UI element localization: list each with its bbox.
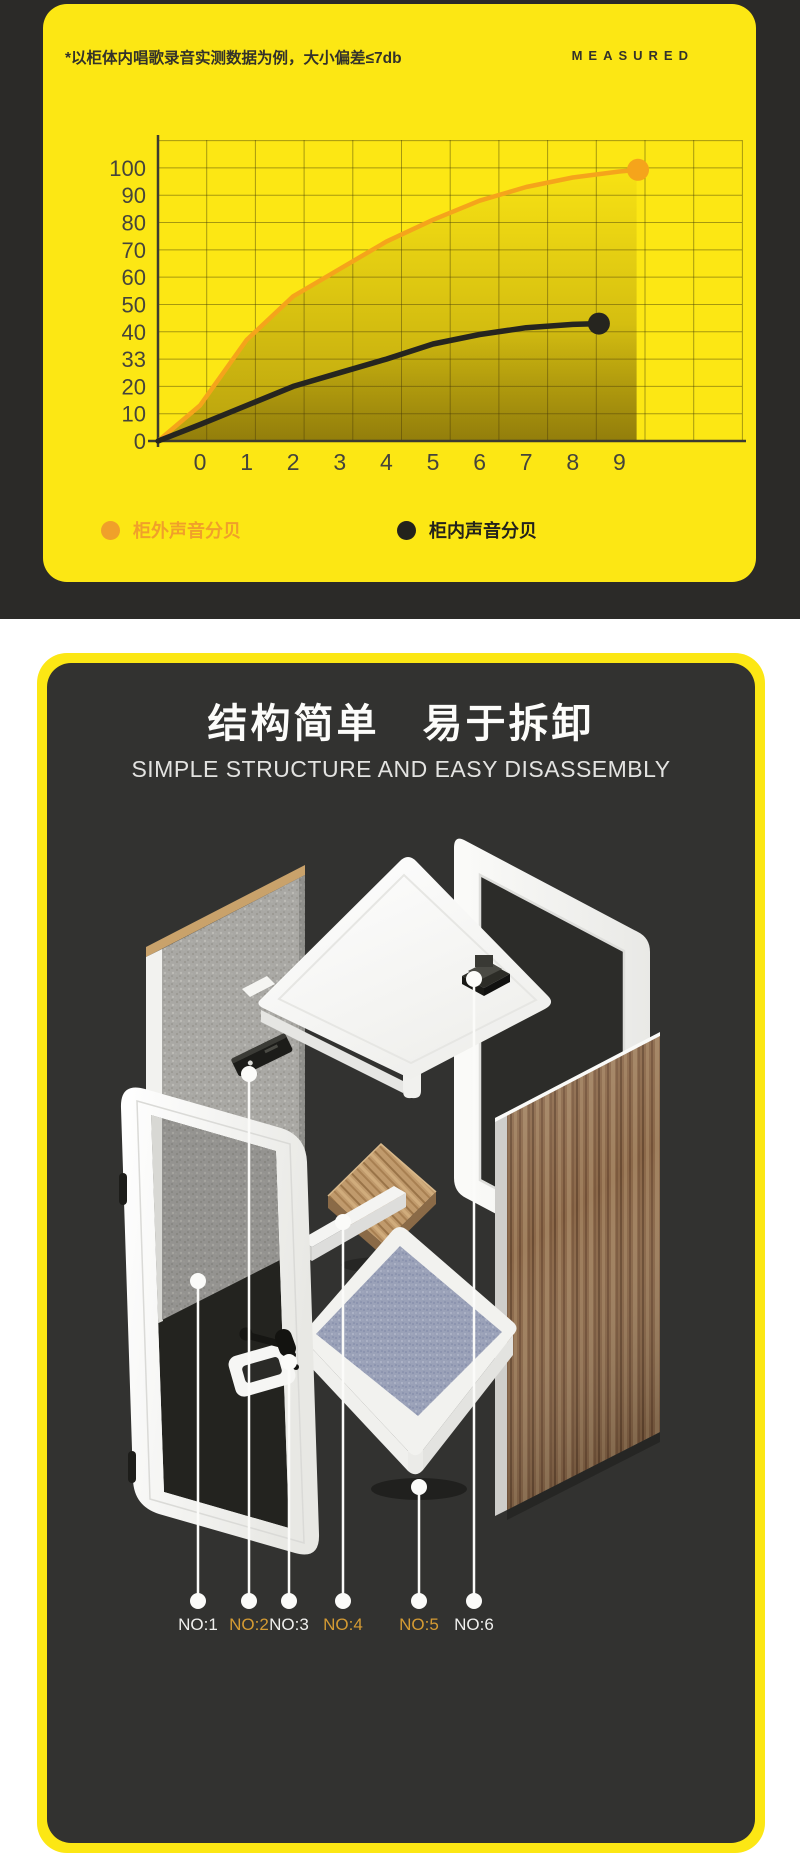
door-hinge-top [119, 1173, 127, 1205]
part-label-6: NO:6 [454, 1615, 494, 1634]
structure-card: 结构简单 易于拆卸 SIMPLE STRUCTURE AND EASY DISA… [47, 663, 755, 1843]
wood-side-panel-part [495, 1032, 660, 1520]
measurement-card: *以柜体内唱歌录音实测数据为例，大小偏差≤7db MEASURED 010203… [43, 4, 756, 582]
x-tick-label: 0 [194, 449, 207, 475]
exploded-view-diagram: NO:1 NO:2 NO:3 NO:4 NO:5 NO:6 [47, 783, 755, 1650]
part-label-1: NO:1 [178, 1615, 218, 1634]
curve-end-dot-1 [588, 313, 610, 335]
legend-label-inside: 柜内声音分贝 [429, 517, 537, 543]
y-tick-label: 10 [122, 402, 146, 427]
base-platform-part [300, 1186, 517, 1500]
part-label-4: NO:4 [323, 1615, 363, 1634]
x-tick-label: 5 [427, 449, 440, 475]
y-tick-label: 80 [122, 211, 146, 236]
x-tick-label: 3 [333, 449, 346, 475]
x-tick-label: 1 [240, 449, 253, 475]
legend-label-outside: 柜外声音分贝 [133, 517, 241, 543]
legend-item-outside: 柜外声音分贝 [101, 517, 241, 543]
part-label-5: NO:5 [399, 1615, 439, 1634]
bottom-section: 结构简单 易于拆卸 SIMPLE STRUCTURE AND EASY DISA… [0, 619, 800, 1650]
y-tick-label: 50 [122, 292, 146, 317]
legend-item-inside: 柜内声音分贝 [397, 517, 537, 543]
x-tick-label: 2 [287, 449, 300, 475]
x-tick-label: 4 [380, 449, 393, 475]
y-tick-label: 90 [122, 183, 146, 208]
x-tick-label: 7 [520, 449, 533, 475]
structure-title: 结构简单 易于拆卸 [47, 691, 755, 749]
x-tick-label: 9 [613, 449, 626, 475]
door-hinge-bottom [128, 1451, 136, 1483]
y-tick-label: 33 [122, 347, 146, 372]
curve-end-dot-0 [627, 159, 649, 181]
part-labels: NO:1 NO:2 NO:3 NO:4 NO:5 NO:6 [178, 1615, 494, 1634]
y-tick-label: 0 [134, 429, 146, 454]
chart-legend: 柜外声音分贝 柜内声音分贝 [43, 517, 756, 543]
legend-dot-outside-icon [101, 521, 120, 540]
y-tick-label: 60 [122, 265, 146, 290]
structure-subtitle: SIMPLE STRUCTURE AND EASY DISASSEMBLY [47, 756, 755, 783]
legend-dot-inside-icon [397, 521, 416, 540]
structure-card-border: 结构简单 易于拆卸 SIMPLE STRUCTURE AND EASY DISA… [37, 653, 765, 1853]
x-tick-label: 8 [566, 449, 579, 475]
y-tick-label: 100 [109, 156, 146, 181]
y-tick-label: 20 [122, 374, 146, 399]
part-label-2: NO:2 [229, 1615, 269, 1634]
top-section: *以柜体内唱歌录音实测数据为例，大小偏差≤7db MEASURED 010203… [0, 0, 800, 619]
y-tick-label: 70 [122, 238, 146, 263]
sound-chart: 01020334050607080901000123456789 [43, 4, 756, 582]
x-tick-label: 6 [473, 449, 486, 475]
part-label-3: NO:3 [269, 1615, 309, 1634]
y-tick-label: 40 [122, 320, 146, 345]
